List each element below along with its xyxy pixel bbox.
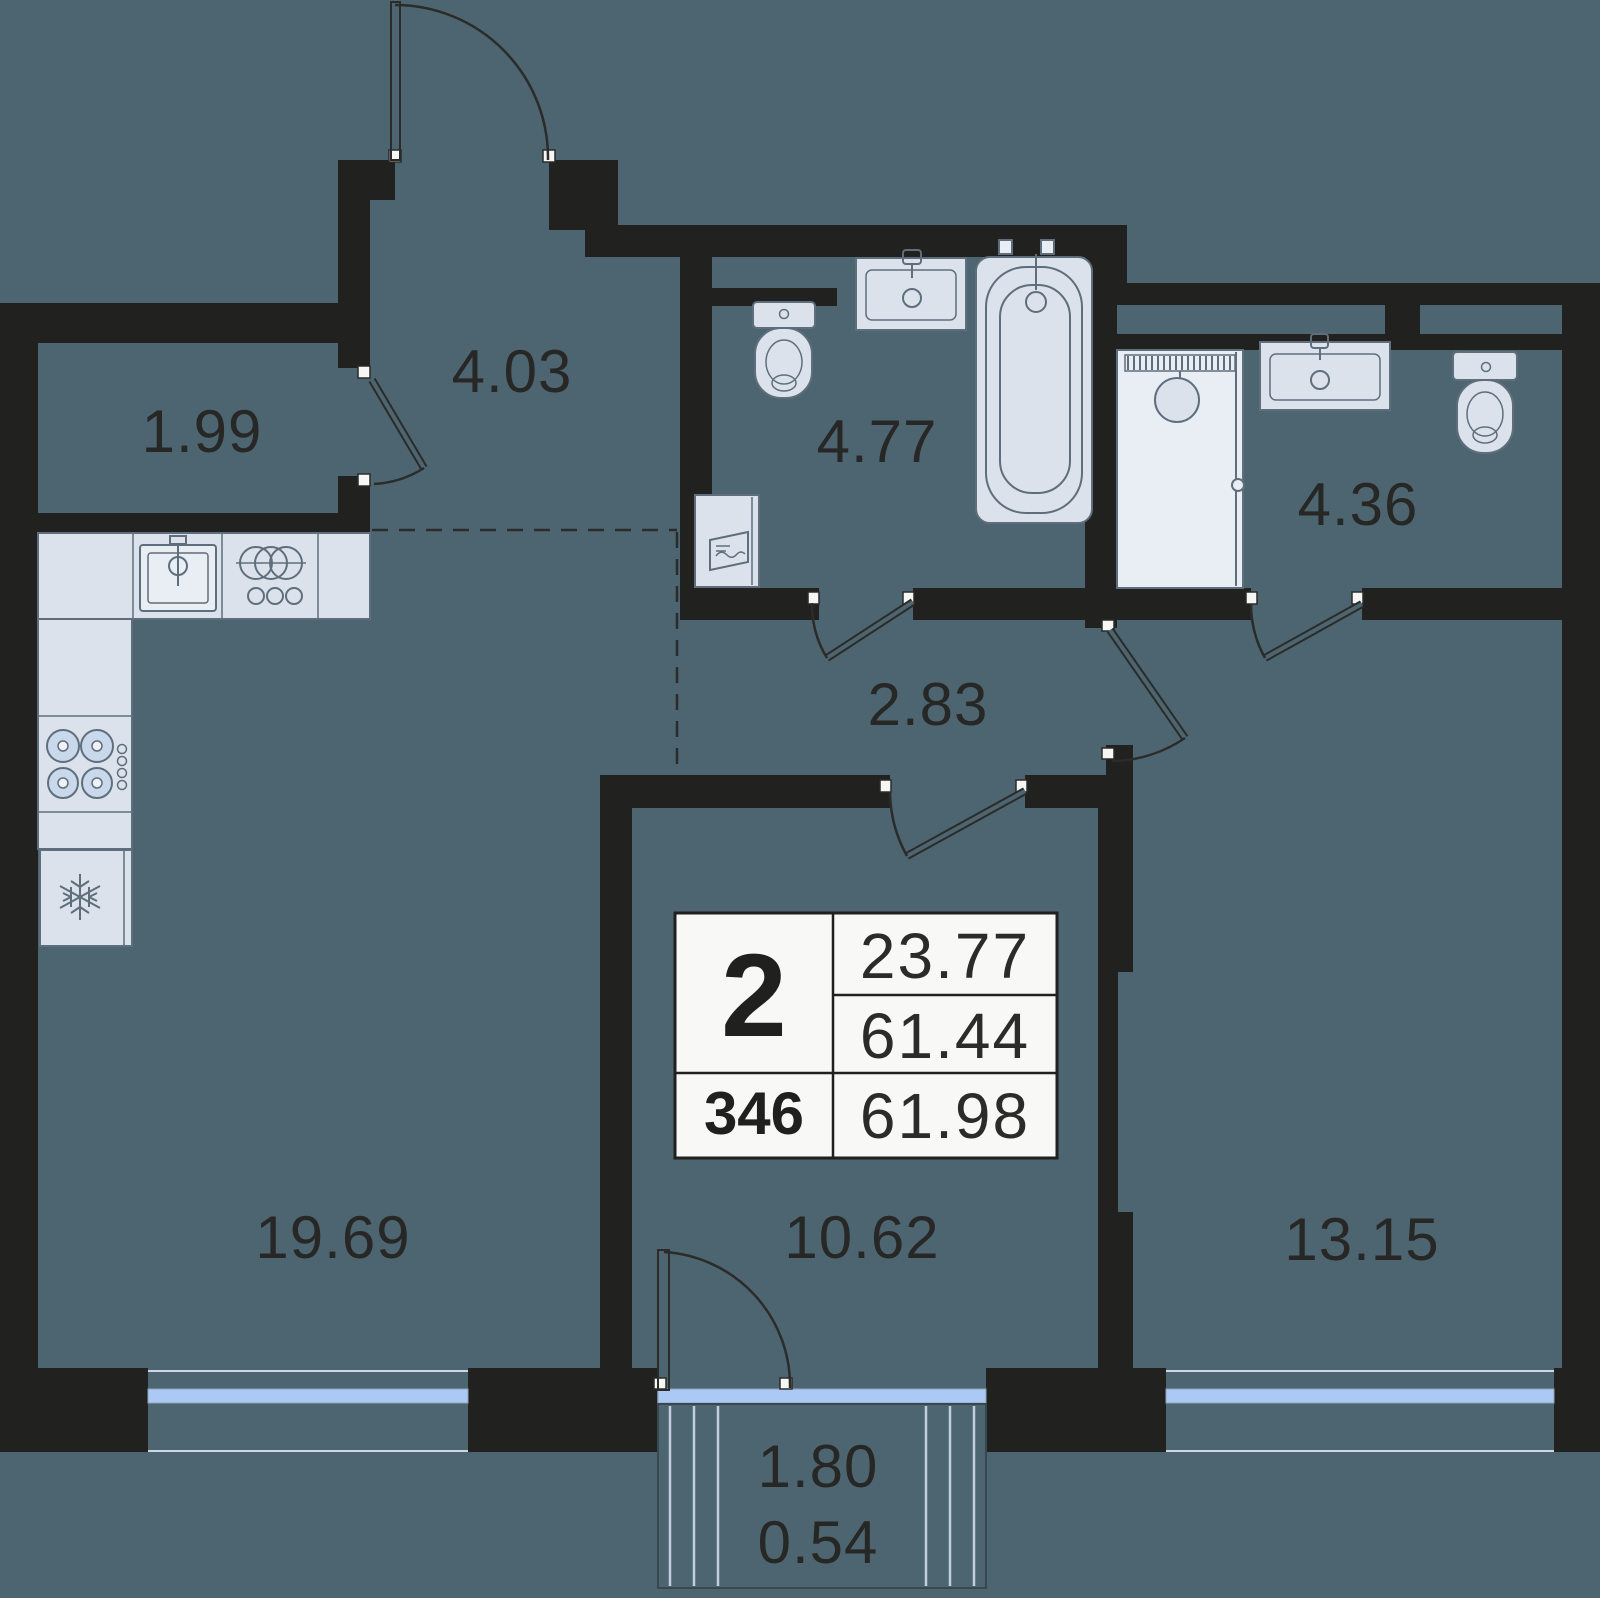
room-label-bathroom: 4.77 <box>817 408 938 475</box>
bathtub-icon <box>976 240 1092 523</box>
wall <box>1098 1212 1133 1370</box>
wall <box>1362 588 1562 620</box>
wall <box>338 160 395 200</box>
wall <box>468 1368 657 1452</box>
window-balcony <box>658 1389 986 1403</box>
window <box>1166 1389 1554 1403</box>
room-label-bedroom: 10.62 <box>784 1204 939 1271</box>
wall <box>0 342 38 1370</box>
balcony-reduced-area-label: 0.54 <box>758 1509 879 1576</box>
area-without-balcony-value: 61.44 <box>860 1000 1030 1072</box>
room-label-corridor: 2.83 <box>868 671 989 738</box>
window <box>148 1389 468 1403</box>
room-label-hallway: 4.03 <box>452 338 573 405</box>
fridge-icon <box>40 850 132 946</box>
wall <box>1385 305 1420 336</box>
toilet-icon <box>753 302 815 398</box>
wall <box>1025 775 1133 808</box>
info-card: 2 346 23.77 61.44 61.98 <box>675 913 1057 1158</box>
wall <box>0 303 368 343</box>
room-label-bathroom2: 4.36 <box>1298 471 1419 538</box>
room-label-room2: 13.15 <box>1284 1206 1439 1273</box>
sink-icon <box>856 250 966 330</box>
toilet2-icon <box>1453 352 1517 453</box>
room-label-closet: 1.99 <box>142 398 263 465</box>
balcony-area-label: 1.80 <box>758 1433 879 1500</box>
wall <box>1095 283 1600 305</box>
room-label-kitchen-living: 19.69 <box>255 1204 410 1271</box>
living-area-value: 23.77 <box>860 920 1030 992</box>
wall <box>1554 1368 1600 1452</box>
floor-plan: 1.99 4.03 4.77 4.36 2.83 19.69 10.62 13.… <box>0 0 1600 1598</box>
wall <box>680 588 819 620</box>
wall <box>1098 972 1118 1212</box>
wall <box>600 808 632 1370</box>
wall <box>986 1368 1166 1452</box>
wall <box>549 160 618 230</box>
sink2-icon <box>1260 334 1390 410</box>
total-area-value: 61.98 <box>860 1080 1030 1152</box>
wall <box>600 775 890 808</box>
kitchen-sink-icon <box>140 536 216 611</box>
wall <box>38 513 370 533</box>
unit-number: 346 <box>704 1080 804 1147</box>
rooms-count: 2 <box>721 930 787 1062</box>
wall <box>0 1368 148 1452</box>
washing-machine-icon <box>695 495 759 587</box>
wall <box>913 588 1251 620</box>
wall <box>1562 283 1600 1370</box>
wall <box>1098 808 1133 972</box>
shower-icon <box>1117 350 1244 588</box>
